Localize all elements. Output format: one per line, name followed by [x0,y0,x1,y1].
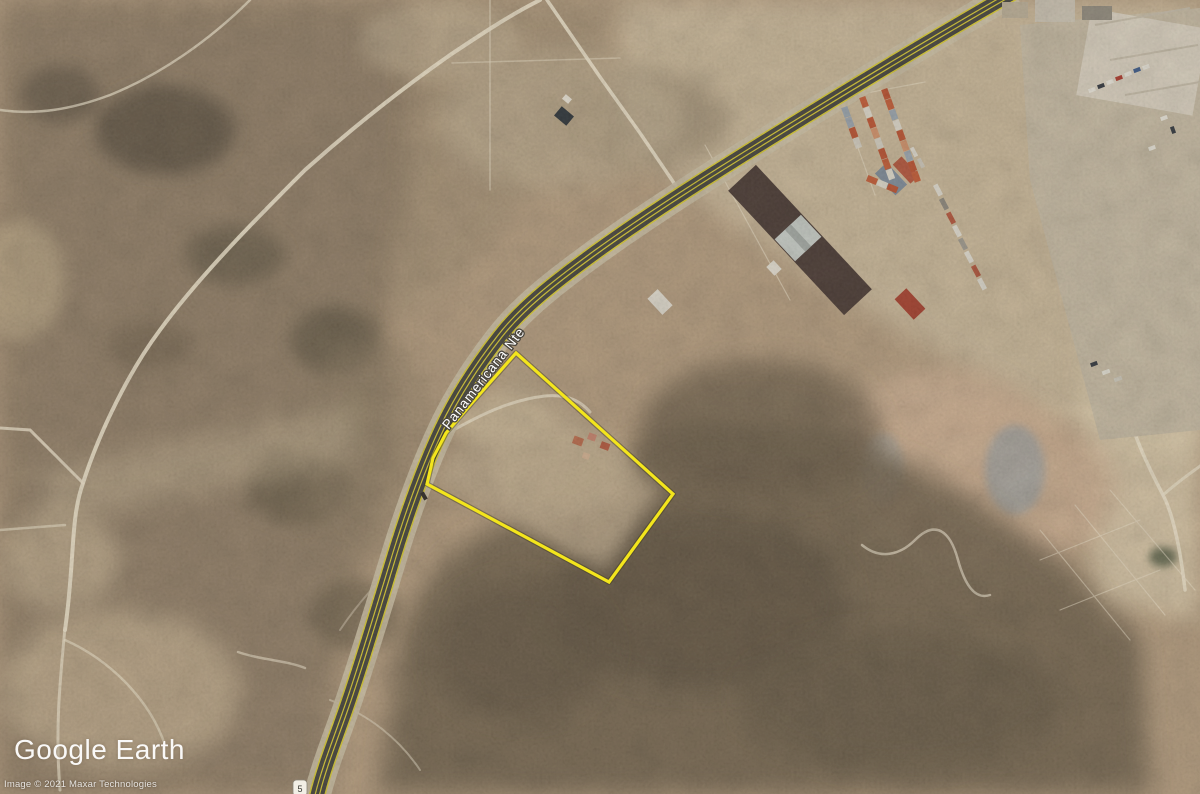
satellite-map[interactable]: Panamericana Nte 5 Google Earth Image © … [0,0,1200,794]
imagery-noise-light [0,0,1200,794]
imagery-attribution: Image © 2021 Maxar Technologies [4,779,157,790]
imagery-canvas[interactable]: Panamericana Nte 5 [0,0,1200,794]
shield-number: 5 [297,784,302,794]
google-earth-logo: Google Earth [14,734,185,766]
highway-shield: 5 [293,780,307,794]
